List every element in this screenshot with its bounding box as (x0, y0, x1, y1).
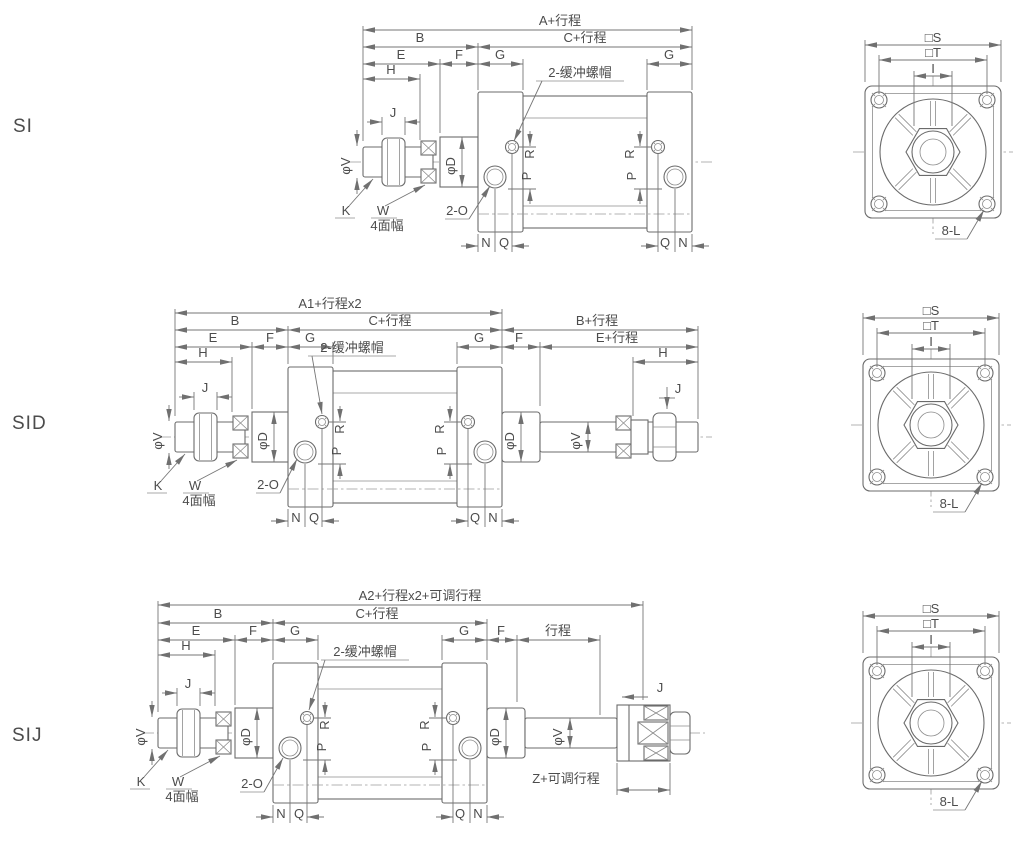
dim-e: E (192, 623, 201, 638)
dim-z-adjustable: Z+可调行程 (532, 771, 600, 786)
dim-phi-v-right: φV (568, 432, 583, 449)
dim-square-t: □T (923, 318, 939, 333)
dim-g-left: G (495, 47, 505, 62)
dim-r-left: R (332, 424, 347, 433)
note-bolts: 8-L (942, 223, 961, 238)
dim-q-right: Q (455, 806, 465, 821)
note-w-flats: 4面幅 (165, 789, 198, 804)
dim-q-right: Q (470, 510, 480, 525)
dim-n-right: N (678, 235, 687, 250)
note-cushion-cap: 2-缓冲螺帽 (333, 644, 397, 659)
dim-w: W (377, 203, 390, 218)
note-ports: 2-O (446, 203, 468, 218)
note-w-flats: 4面幅 (370, 218, 403, 233)
dim-phi-v-right: φV (550, 728, 565, 745)
dim-b: B (231, 313, 240, 328)
dim-r-right: R (622, 149, 637, 158)
note-cushion-cap: 2-缓冲螺帽 (548, 65, 612, 80)
note-ports: 2-O (241, 776, 263, 791)
dim-b: B (416, 30, 425, 45)
dim-square-t: □T (923, 616, 939, 631)
dim-square-s: □S (925, 30, 942, 45)
dim-e: E (397, 47, 406, 62)
dim-c-stroke: C+行程 (564, 30, 607, 45)
dim-i: I (929, 334, 933, 349)
note-ports: 2-O (257, 477, 279, 492)
note-bolts: 8-L (940, 794, 959, 809)
dim-square-s: □S (923, 303, 940, 318)
dim-p-left: P (329, 447, 344, 456)
dim-phi-v: φV (338, 157, 353, 174)
dim-p-right: P (624, 172, 639, 181)
dim-r-left: R (317, 720, 332, 729)
dim-f-left: F (249, 623, 257, 638)
dim-k: K (137, 774, 146, 789)
dim-e: E (209, 330, 218, 345)
dim-square-t: □T (925, 45, 941, 60)
dim-n-left: N (291, 510, 300, 525)
dim-p-right: P (434, 447, 449, 456)
dim-q-left: Q (294, 806, 304, 821)
dim-stroke: 行程 (545, 623, 571, 638)
dim-q-right: Q (660, 235, 670, 250)
dim-g-left: G (290, 623, 300, 638)
dim-p-left: P (314, 743, 329, 752)
dim-w: W (172, 774, 185, 789)
variant-label-si: SI (13, 116, 33, 137)
dim-g-left: G (305, 330, 315, 345)
dim-a-stroke: A+行程 (539, 13, 581, 28)
dim-q-left: Q (499, 235, 509, 250)
dim-c-stroke: C+行程 (369, 313, 412, 328)
dim-j-right: J (657, 680, 664, 695)
dim-n-left: N (276, 806, 285, 821)
dim-phi-d-left: φD (238, 728, 253, 746)
dim-k: K (154, 478, 163, 493)
dim-r-right: R (417, 720, 432, 729)
dim-j: J (390, 105, 397, 120)
dim-a1-stroke: A1+行程x2 (298, 296, 361, 311)
dim-g-right: G (474, 330, 484, 345)
dim-phi-d-right: φD (487, 728, 502, 746)
dim-g-right: G (664, 47, 674, 62)
dim-c-stroke: C+行程 (356, 606, 399, 621)
dim-q-left: Q (309, 510, 319, 525)
dim-n-left: N (481, 235, 490, 250)
dim-r-right: R (432, 424, 447, 433)
dim-h-right: H (658, 345, 667, 360)
dim-f-right: F (515, 330, 523, 345)
dim-b: B (214, 606, 223, 621)
note-w-flats: 4面幅 (182, 493, 215, 508)
dim-j-left: J (202, 380, 209, 395)
dim-a2-stroke: A2+行程x2+可调行程 (359, 588, 482, 603)
dim-b-stroke: B+行程 (576, 313, 618, 328)
dim-phi-d: φD (443, 157, 458, 175)
dim-phi-d-left: φD (255, 432, 270, 450)
dim-r-left: R (522, 149, 537, 158)
dim-f-left: F (266, 330, 274, 345)
dim-g-right: G (459, 623, 469, 638)
dim-e-stroke: E+行程 (596, 330, 638, 345)
dim-p-right: P (419, 743, 434, 752)
dim-p-left: P (519, 172, 534, 181)
dim-n-right: N (488, 510, 497, 525)
dim-phi-d-right: φD (502, 432, 517, 450)
note-cushion-cap: 2-缓冲螺帽 (320, 340, 384, 355)
dim-phi-v-left: φV (150, 432, 165, 449)
dim-h-left: H (198, 345, 207, 360)
dim-j-right: J (675, 381, 682, 396)
variant-label-sij: SIJ (12, 725, 42, 746)
dim-h: H (181, 638, 190, 653)
variant-label-sid: SID (12, 413, 47, 434)
dim-square-s: □S (923, 601, 940, 616)
cylinder-dimension-drawing: SI (0, 0, 1014, 851)
dim-f-right: F (497, 623, 505, 638)
dim-i: I (929, 632, 933, 647)
dim-j-left: J (185, 676, 192, 691)
dim-n-right: N (473, 806, 482, 821)
dim-h: H (386, 62, 395, 77)
dim-w: W (189, 478, 202, 493)
dim-f: F (455, 47, 463, 62)
note-bolts: 8-L (940, 496, 959, 511)
dim-k: K (342, 203, 351, 218)
dim-phi-v-left: φV (133, 728, 148, 745)
dim-i: I (931, 61, 935, 76)
drawing-page: SI (0, 0, 1014, 851)
